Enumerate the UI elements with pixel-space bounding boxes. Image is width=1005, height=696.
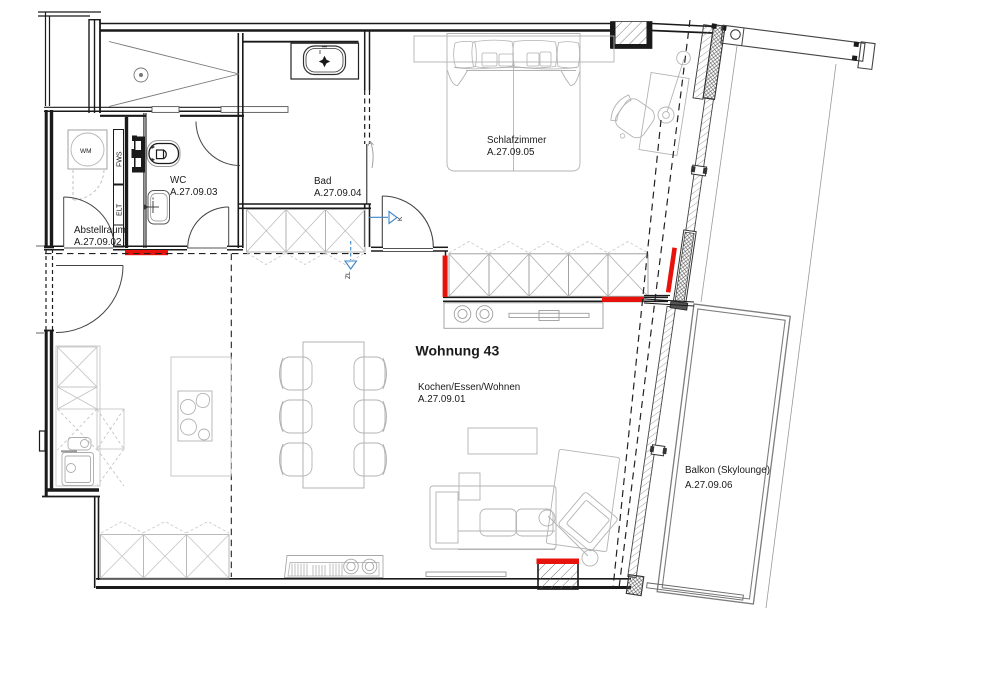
svg-text:A.27.09.01: A.27.09.01 (418, 394, 465, 405)
svg-text:Wohnung 43: Wohnung 43 (416, 343, 500, 359)
svg-text:A.27.09.03: A.27.09.03 (170, 187, 218, 198)
svg-text:Balkon (Skylounge): Balkon (Skylounge) (685, 465, 770, 476)
svg-text:Schlafzimmer: Schlafzimmer (487, 135, 547, 146)
svg-text:WM: WM (80, 148, 92, 155)
svg-text:A.27.09.06: A.27.09.06 (685, 480, 733, 491)
svg-text:Bad: Bad (314, 176, 331, 187)
svg-text:ELT: ELT (117, 203, 124, 216)
svg-text:A.27.09.05: A.27.09.05 (487, 147, 535, 158)
svg-text:Kochen/Essen/Wohnen: Kochen/Essen/Wohnen (418, 382, 520, 393)
svg-text:Abstellraum: Abstellraum (74, 225, 126, 236)
svg-text:K: K (397, 216, 404, 221)
svg-text:ZL: ZL (345, 271, 352, 279)
svg-text:WC: WC (170, 175, 186, 186)
svg-text:FWS: FWS (117, 151, 124, 167)
svg-text:A.27.09.04: A.27.09.04 (314, 188, 362, 199)
svg-text:A.27.09.02: A.27.09.02 (74, 237, 121, 248)
